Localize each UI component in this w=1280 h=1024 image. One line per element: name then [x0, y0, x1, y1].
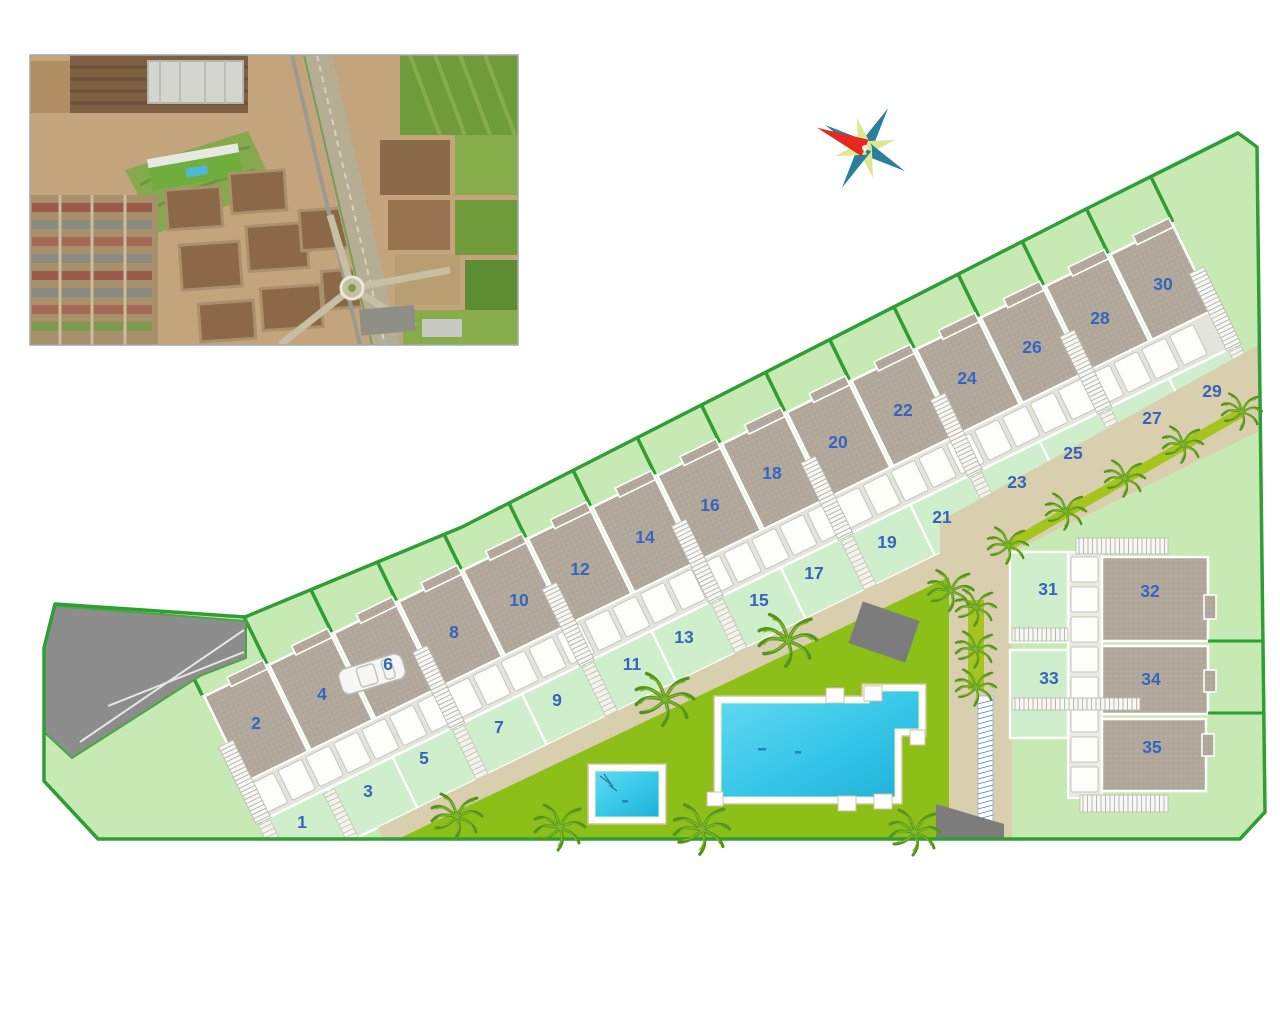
plot-label-18: 18	[762, 463, 782, 483]
plot-label-21: 21	[932, 507, 952, 527]
hatched-walkway	[1012, 628, 1068, 641]
terrace-cell	[1071, 737, 1098, 762]
compass-hub	[862, 145, 868, 151]
hatched-walkway	[1012, 698, 1140, 710]
plot-label-14: 14	[635, 527, 655, 547]
aerial-photo-inset	[30, 55, 518, 345]
plot-label-28: 28	[1090, 308, 1110, 328]
compass-rose-icon	[817, 108, 905, 188]
plot-label-17: 17	[804, 563, 823, 583]
plot-label-20: 20	[828, 432, 848, 452]
plot-label-5: 5	[419, 748, 429, 768]
plot-label-33: 33	[1039, 668, 1059, 688]
plot-label-16: 16	[700, 495, 720, 515]
plot-label-9: 9	[552, 690, 562, 710]
plot-label-4: 4	[317, 684, 327, 704]
kids-pool	[588, 764, 666, 824]
plot-label-27: 27	[1142, 408, 1161, 428]
site-plan-page: { "title": "residential development site…	[0, 0, 1280, 1024]
plot-label-11: 11	[623, 654, 642, 674]
plot-label-26: 26	[1022, 337, 1042, 357]
plot-label-24: 24	[957, 368, 977, 388]
plot-label-29: 29	[1202, 381, 1222, 401]
plot-label-22: 22	[893, 400, 913, 420]
plot-label-2: 2	[251, 713, 261, 733]
plot-label-6: 6	[383, 654, 393, 674]
plot-label-30: 30	[1153, 274, 1173, 294]
plot-label-32: 32	[1140, 581, 1160, 601]
site-plan-canvas: 1234567891011121314151617181920212223242…	[0, 0, 1280, 1024]
hatched-walkway	[1076, 538, 1168, 554]
plot-label-34: 34	[1141, 669, 1161, 689]
plot-label-15: 15	[749, 590, 769, 610]
plot-label-10: 10	[509, 590, 529, 610]
plot-label-13: 13	[674, 627, 694, 647]
plot-label-31: 31	[1038, 579, 1058, 599]
plot-label-3: 3	[363, 781, 373, 801]
plot-label-23: 23	[1007, 472, 1027, 492]
plot-label-12: 12	[570, 559, 590, 579]
plot-label-1: 1	[297, 812, 307, 832]
terrace-cell	[1071, 707, 1098, 732]
terrace-cell	[1071, 587, 1098, 612]
plot-label-25: 25	[1063, 443, 1083, 463]
terrace-cell	[1071, 557, 1098, 582]
plot-label-7: 7	[494, 717, 504, 737]
plot-label-8: 8	[449, 622, 459, 642]
plot-label-35: 35	[1142, 737, 1162, 757]
ramp-hatch-strip	[978, 696, 993, 822]
swimming-pool	[707, 684, 926, 811]
terrace-cell	[1071, 617, 1098, 642]
terrace-cell	[1071, 647, 1098, 672]
garden-33	[1010, 650, 1068, 738]
terrace-cell	[1071, 767, 1098, 792]
plot-label-19: 19	[877, 532, 897, 552]
hatched-walkway	[1080, 795, 1168, 812]
